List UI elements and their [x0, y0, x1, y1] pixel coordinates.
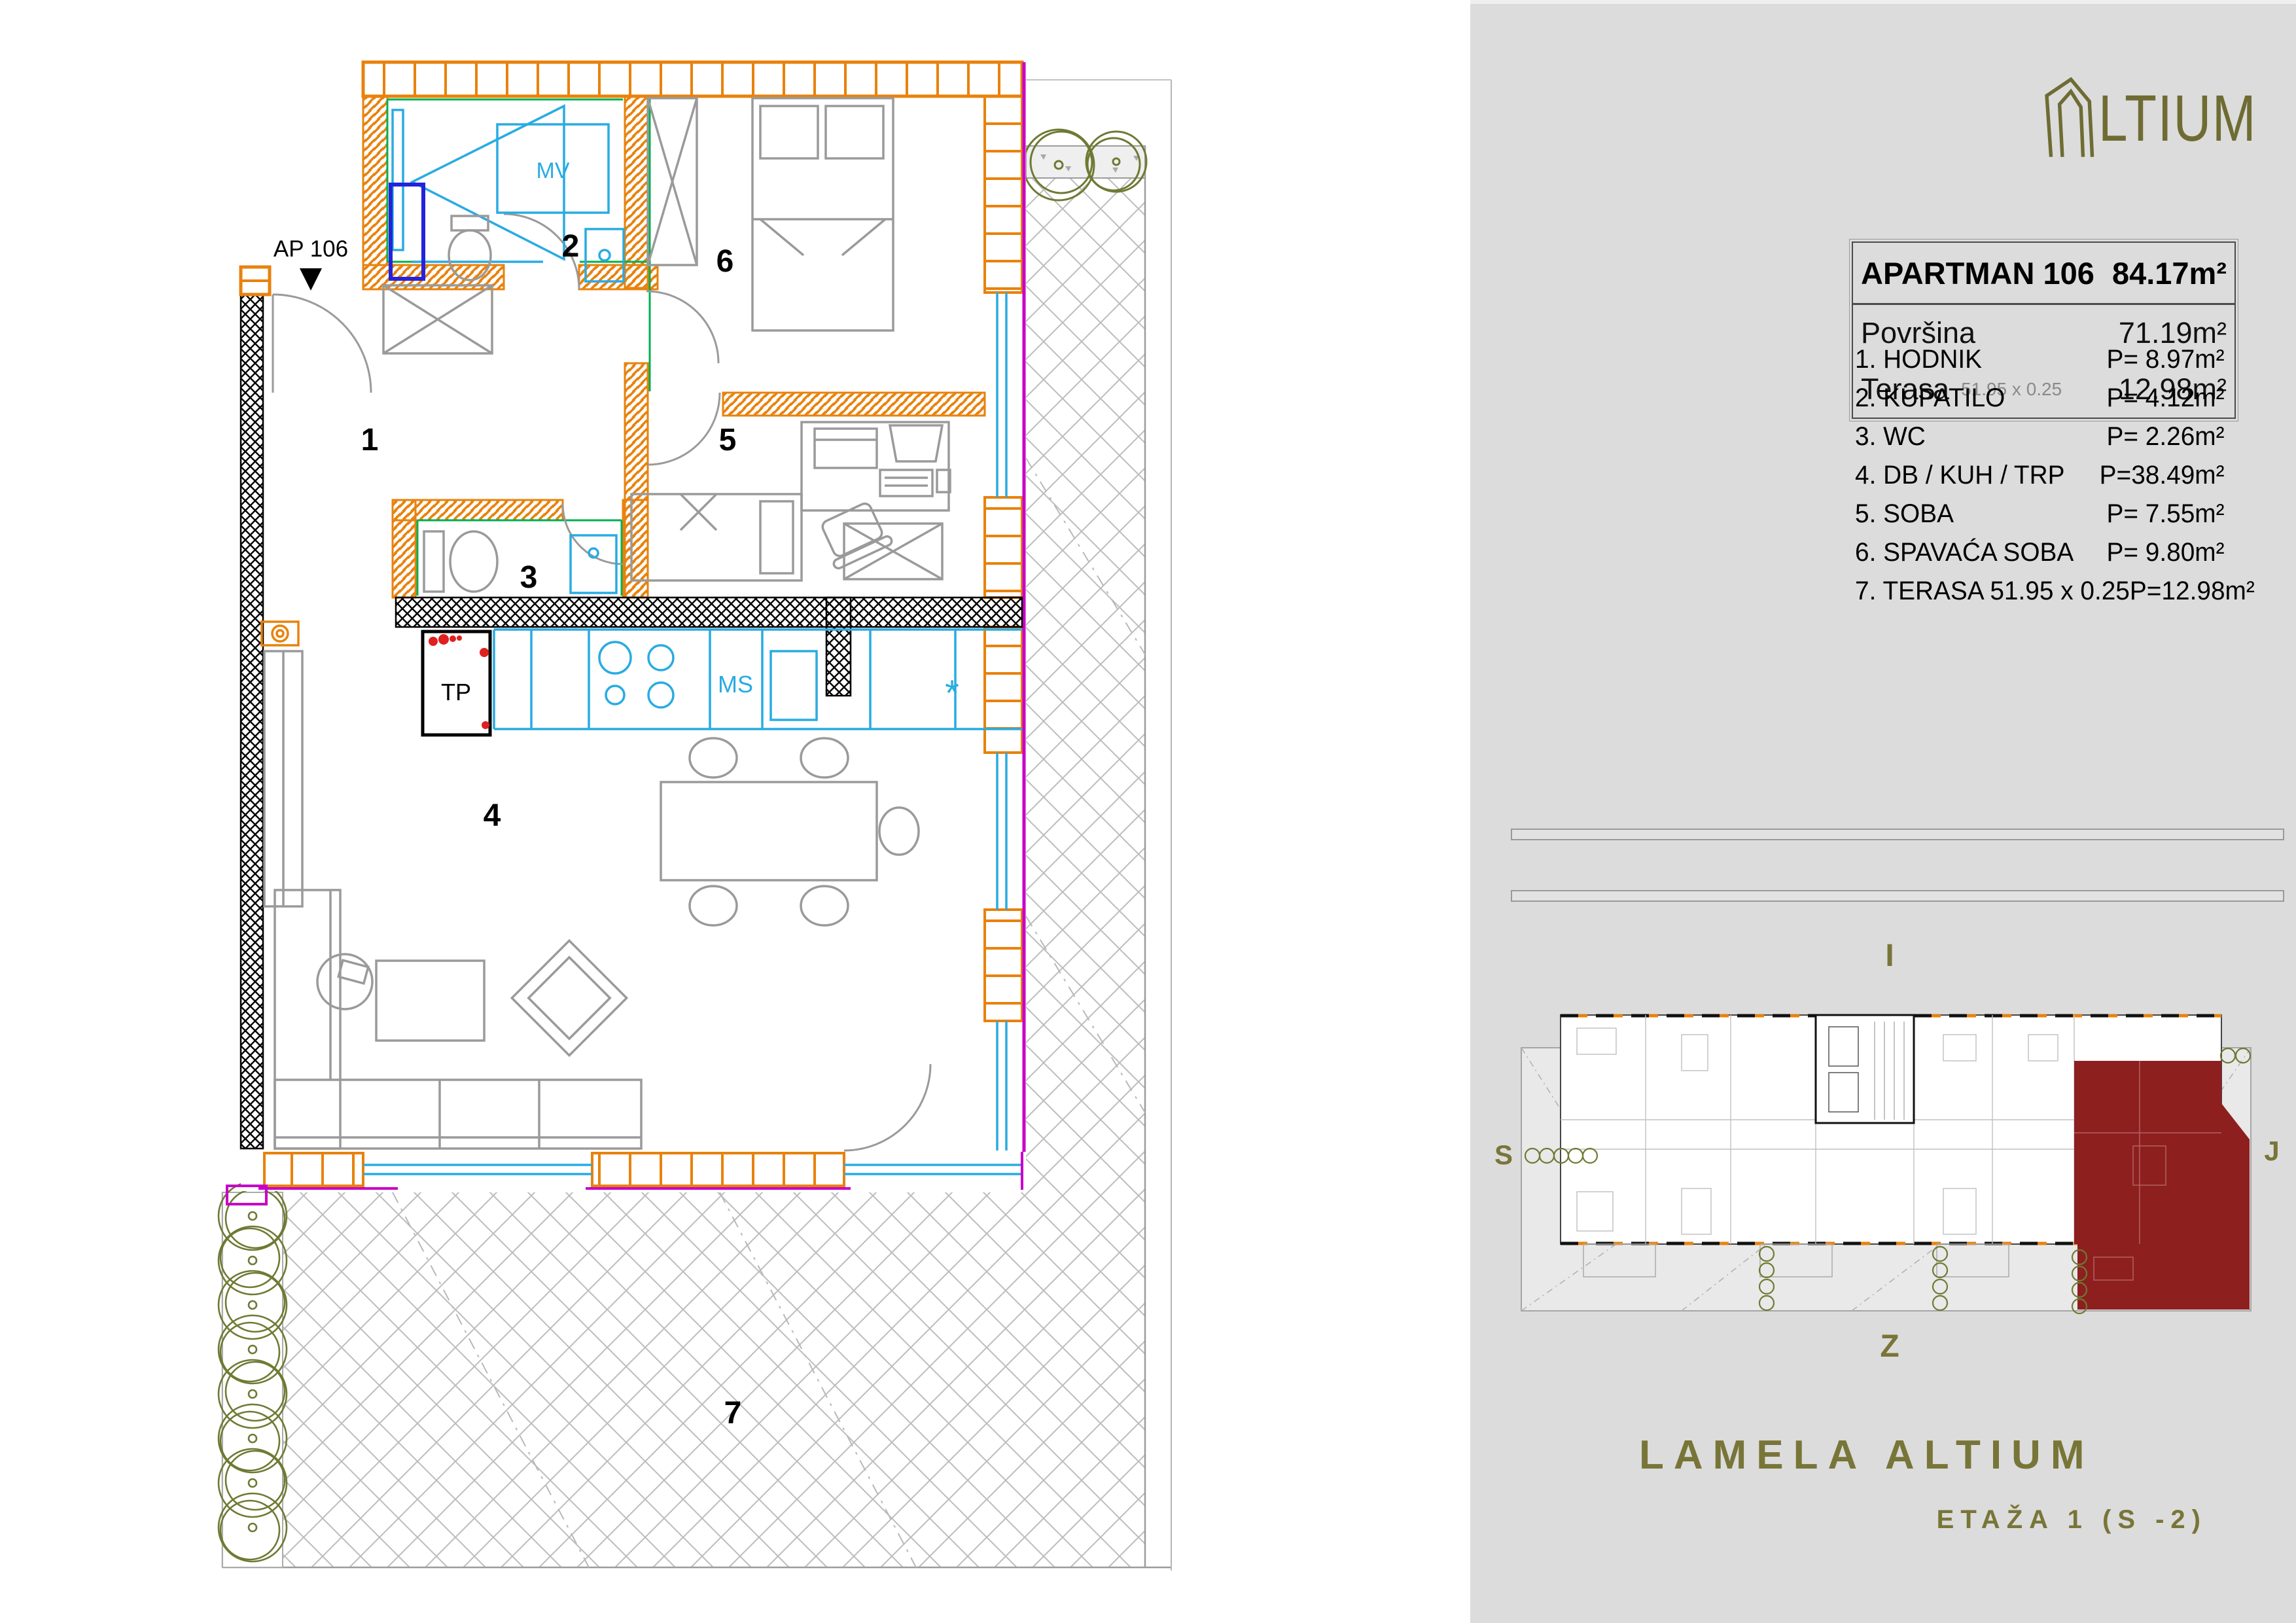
room-list-item: 3. WCP= 2.26m² — [1855, 418, 2225, 456]
compass-west: S — [1494, 1139, 1513, 1170]
room-number: 1 — [361, 423, 379, 457]
road-bar — [1511, 829, 2284, 840]
room-number: 4 — [484, 798, 501, 833]
panel-label-tp: TP — [441, 679, 471, 705]
plan-sheet: 7 AP 106 — [0, 0, 2296, 1623]
room-list: 1. HODNIKP= 8.97m² 2. KUPATILOP= 4.12m² … — [1855, 340, 2225, 611]
compass-south: Z — [1880, 1329, 1899, 1364]
floor-plan: 7 AP 106 — [0, 0, 1470, 1623]
room-number: 2 — [562, 229, 580, 264]
unit-total-area: 84.17m² — [2112, 255, 2227, 291]
unit-marker-label: AP 106 — [274, 236, 348, 262]
room-list-item: 6. SPAVAĆA SOBAP= 9.80m² — [1855, 533, 2225, 572]
room-number-terrace: 7 — [724, 1396, 742, 1431]
room-list-item: 2. KUPATILOP= 4.12m² — [1855, 379, 2225, 418]
appliance-label-mv: MV — [537, 158, 570, 183]
mini-site-plan: I — [1485, 825, 2296, 1368]
room-list-item: 5. SOBAP= 7.55m² — [1855, 495, 2225, 533]
unit-title: APARTMAN 106 — [1861, 255, 2094, 291]
project-title: LAMELA ALTIUM — [1639, 1432, 2296, 1478]
room-number: 5 — [719, 423, 737, 457]
altium-logo-text: LTIUM — [2098, 81, 2257, 156]
altium-logo-icon — [2045, 77, 2097, 159]
room-number: 3 — [520, 560, 538, 595]
kitchen-star: * — [945, 672, 959, 713]
room-list-item: 4. DB / KUH / TRPP=38.49m² — [1855, 456, 2225, 495]
altium-logo: LTIUM — [2045, 77, 2267, 159]
compass-east: J — [2264, 1135, 2279, 1166]
stair-core — [1816, 1015, 1914, 1123]
room-list-item: 7. TERASA 51.95 x 0.25P=12.98m² — [1855, 572, 2225, 611]
room-number: 6 — [716, 244, 734, 279]
room-list-item: 1. HODNIKP= 8.97m² — [1855, 340, 2225, 379]
info-panel: LTIUM APARTMAN 106 84.17m² Površina 71.1… — [1470, 0, 2296, 1623]
compass-north: I — [1885, 938, 1894, 973]
appliance-label-ms: MS — [718, 671, 753, 698]
road-bar — [1511, 891, 2284, 901]
floor-subtitle: ETAŽA 1 (S -2) — [1639, 1505, 2207, 1535]
